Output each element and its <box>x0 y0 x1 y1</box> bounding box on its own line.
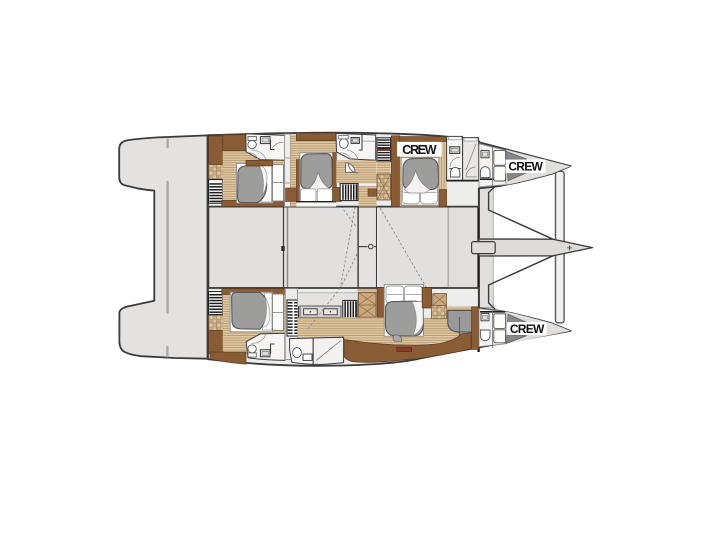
svg-text:CREW: CREW <box>508 160 543 174</box>
svg-text:CREW: CREW <box>510 322 545 336</box>
svg-text:CREW: CREW <box>402 143 437 157</box>
